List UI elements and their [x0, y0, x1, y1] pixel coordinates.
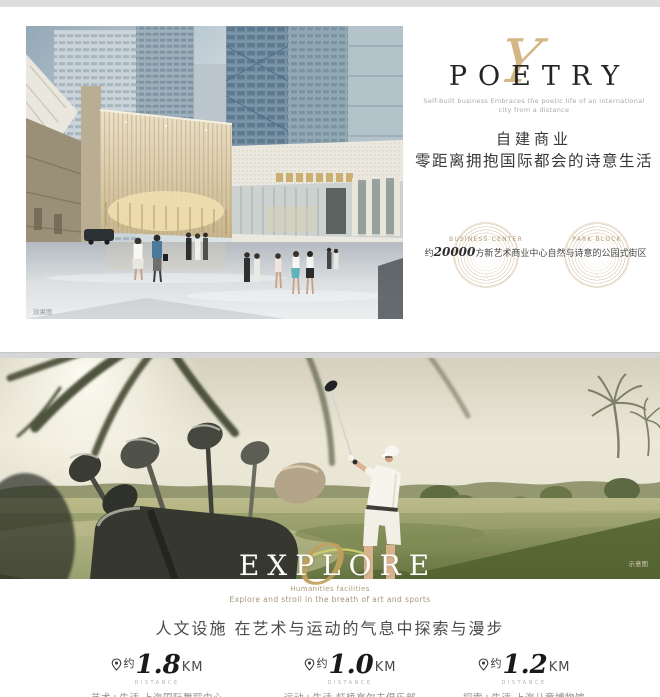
location-pin-icon	[111, 658, 122, 671]
badge-text: 约20000方新艺术商业中心	[425, 245, 548, 259]
poetry-subtitle: Self-built business Embraces the poetic …	[408, 97, 660, 115]
distance-description: 艺术+生活 上海国际舞蹈中心	[57, 690, 257, 697]
distance-approx: 约	[124, 655, 135, 671]
distance-main: 约 1.0 KM	[250, 650, 450, 678]
distance-description: 探索+生活 上海儿童博物馆	[424, 690, 624, 697]
badge-number: 20000	[434, 245, 476, 259]
location-pin-icon	[478, 658, 489, 671]
render-watermark: 效果图	[33, 307, 53, 316]
explore-title: EXPLORE	[0, 551, 660, 581]
render-plaza	[26, 242, 403, 319]
distance-item-children-museum: 约 1.2 KM DISTANCE 探索+生活 上海儿童博物馆	[424, 650, 624, 697]
poetry-heading-cn1: 自建商业	[408, 130, 660, 148]
brochure-page: 效果图 Y POETRY Self-built business Embrace…	[0, 0, 660, 697]
location-pin-icon	[304, 658, 315, 671]
distance-value: 1.2	[503, 652, 548, 678]
distance-label: DISTANCE	[250, 680, 450, 686]
badge-text: 自然与诗意的公园式街区	[547, 245, 646, 259]
badge-prefix: 约	[425, 249, 434, 259]
distance-unit: KM	[182, 660, 204, 675]
poetry-subtitle-line2: city from a distance	[408, 106, 660, 115]
badge-park-block: PARK BLOCK 自然与诗意的公园式街区	[532, 220, 660, 294]
distance-main: 约 1.8 KM	[57, 650, 257, 678]
distance-unit: KM	[375, 660, 397, 675]
explore-heading-cn: 人文设施 在艺术与运动的气息中探索与漫步	[0, 619, 660, 639]
building-render-scene: 效果图	[26, 26, 403, 319]
badge-label: PARK BLOCK	[532, 236, 660, 243]
distance-item-golf-club: 约 1.0 KM DISTANCE 运动+生活 虹桥高尔夫俱乐部	[250, 650, 450, 697]
distance-item-dance-center: 约 1.8 KM DISTANCE 艺术+生活 上海国际舞蹈中心	[57, 650, 257, 697]
render-white-building	[232, 140, 403, 255]
render-gold-pavilion	[100, 110, 232, 238]
poetry-heading-cn2: 零距离拥抱国际都会的诗意生活	[402, 152, 660, 171]
poetry-subtitle-line1: Self-built business Embraces the poetic …	[408, 97, 660, 106]
distance-value: 1.0	[329, 652, 374, 678]
distance-value: 1.8	[136, 652, 181, 678]
poetry-title: POETRY	[408, 62, 660, 92]
distance-main: 约 1.2 KM	[424, 650, 624, 678]
building-render-photo: 效果图	[26, 26, 403, 319]
top-border	[0, 0, 660, 7]
poetry-column: Y POETRY Self-built business Embraces th…	[408, 30, 660, 171]
badge-suffix: 自然与诗意的公园式街区	[547, 249, 646, 259]
distance-description: 运动+生活 虹桥高尔夫俱乐部	[250, 690, 450, 697]
distance-approx: 约	[491, 655, 502, 671]
distance-approx: 约	[317, 655, 328, 671]
distance-unit: KM	[549, 660, 571, 675]
distance-label: DISTANCE	[424, 680, 624, 686]
distance-label: DISTANCE	[57, 680, 257, 686]
